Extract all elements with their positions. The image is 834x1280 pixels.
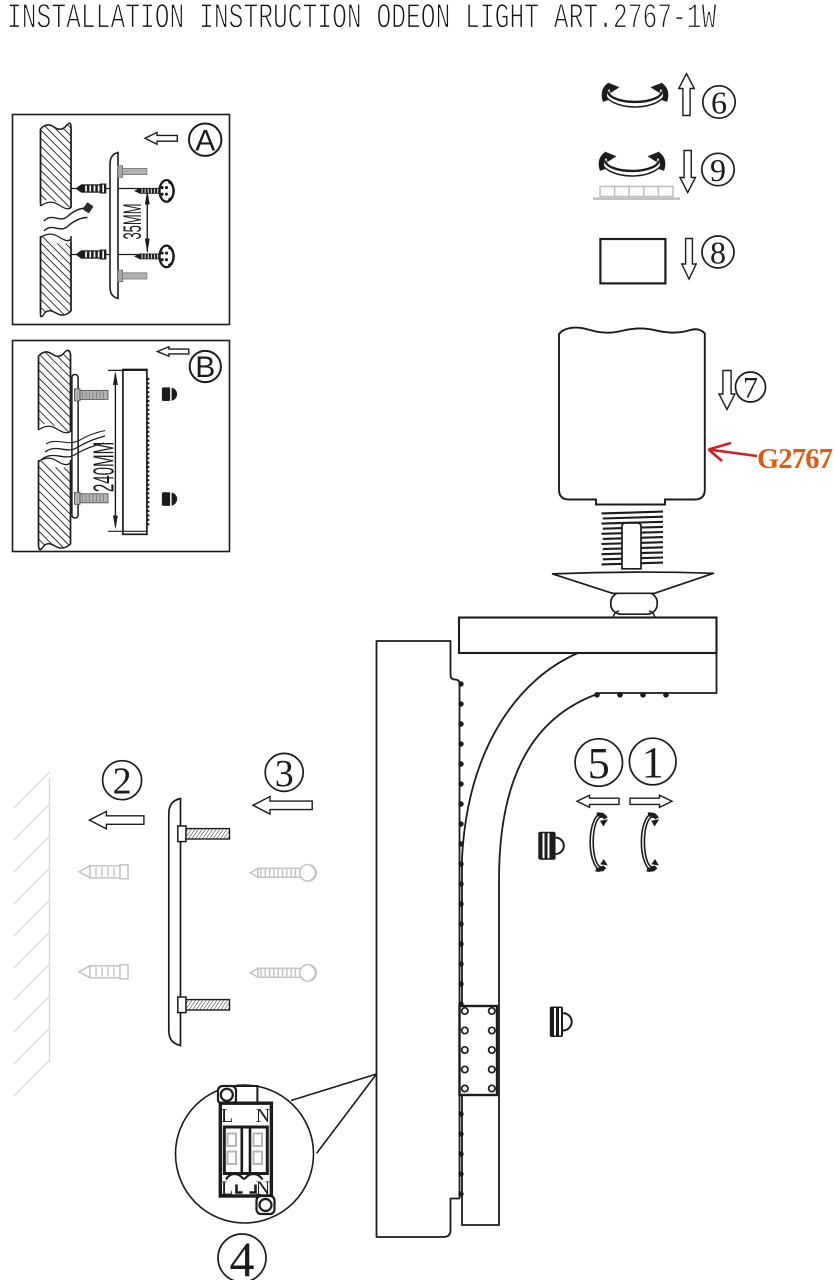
svg-text:B: B <box>195 351 215 384</box>
svg-text:35MM: 35MM <box>120 203 148 239</box>
svg-text:9: 9 <box>710 152 726 188</box>
svg-text:INSTALLATION INSTRUCTION ODEON: INSTALLATION INSTRUCTION ODEON LIGHT ART… <box>7 0 717 39</box>
svg-text:240MM: 240MM <box>87 442 120 492</box>
svg-text:5: 5 <box>588 739 610 788</box>
svg-text:4: 4 <box>230 1231 255 1280</box>
svg-text:7: 7 <box>743 372 758 405</box>
svg-text:L: L <box>221 1105 233 1127</box>
svg-text:2: 2 <box>113 761 132 803</box>
svg-text:6: 6 <box>711 84 727 120</box>
svg-text:N: N <box>256 1105 270 1127</box>
svg-text:A: A <box>195 124 215 157</box>
svg-text:G2767: G2767 <box>757 444 833 475</box>
svg-text:L: L <box>221 1178 233 1200</box>
svg-text:1: 1 <box>642 738 664 787</box>
svg-text:3: 3 <box>275 753 294 795</box>
svg-text:8: 8 <box>710 234 726 270</box>
